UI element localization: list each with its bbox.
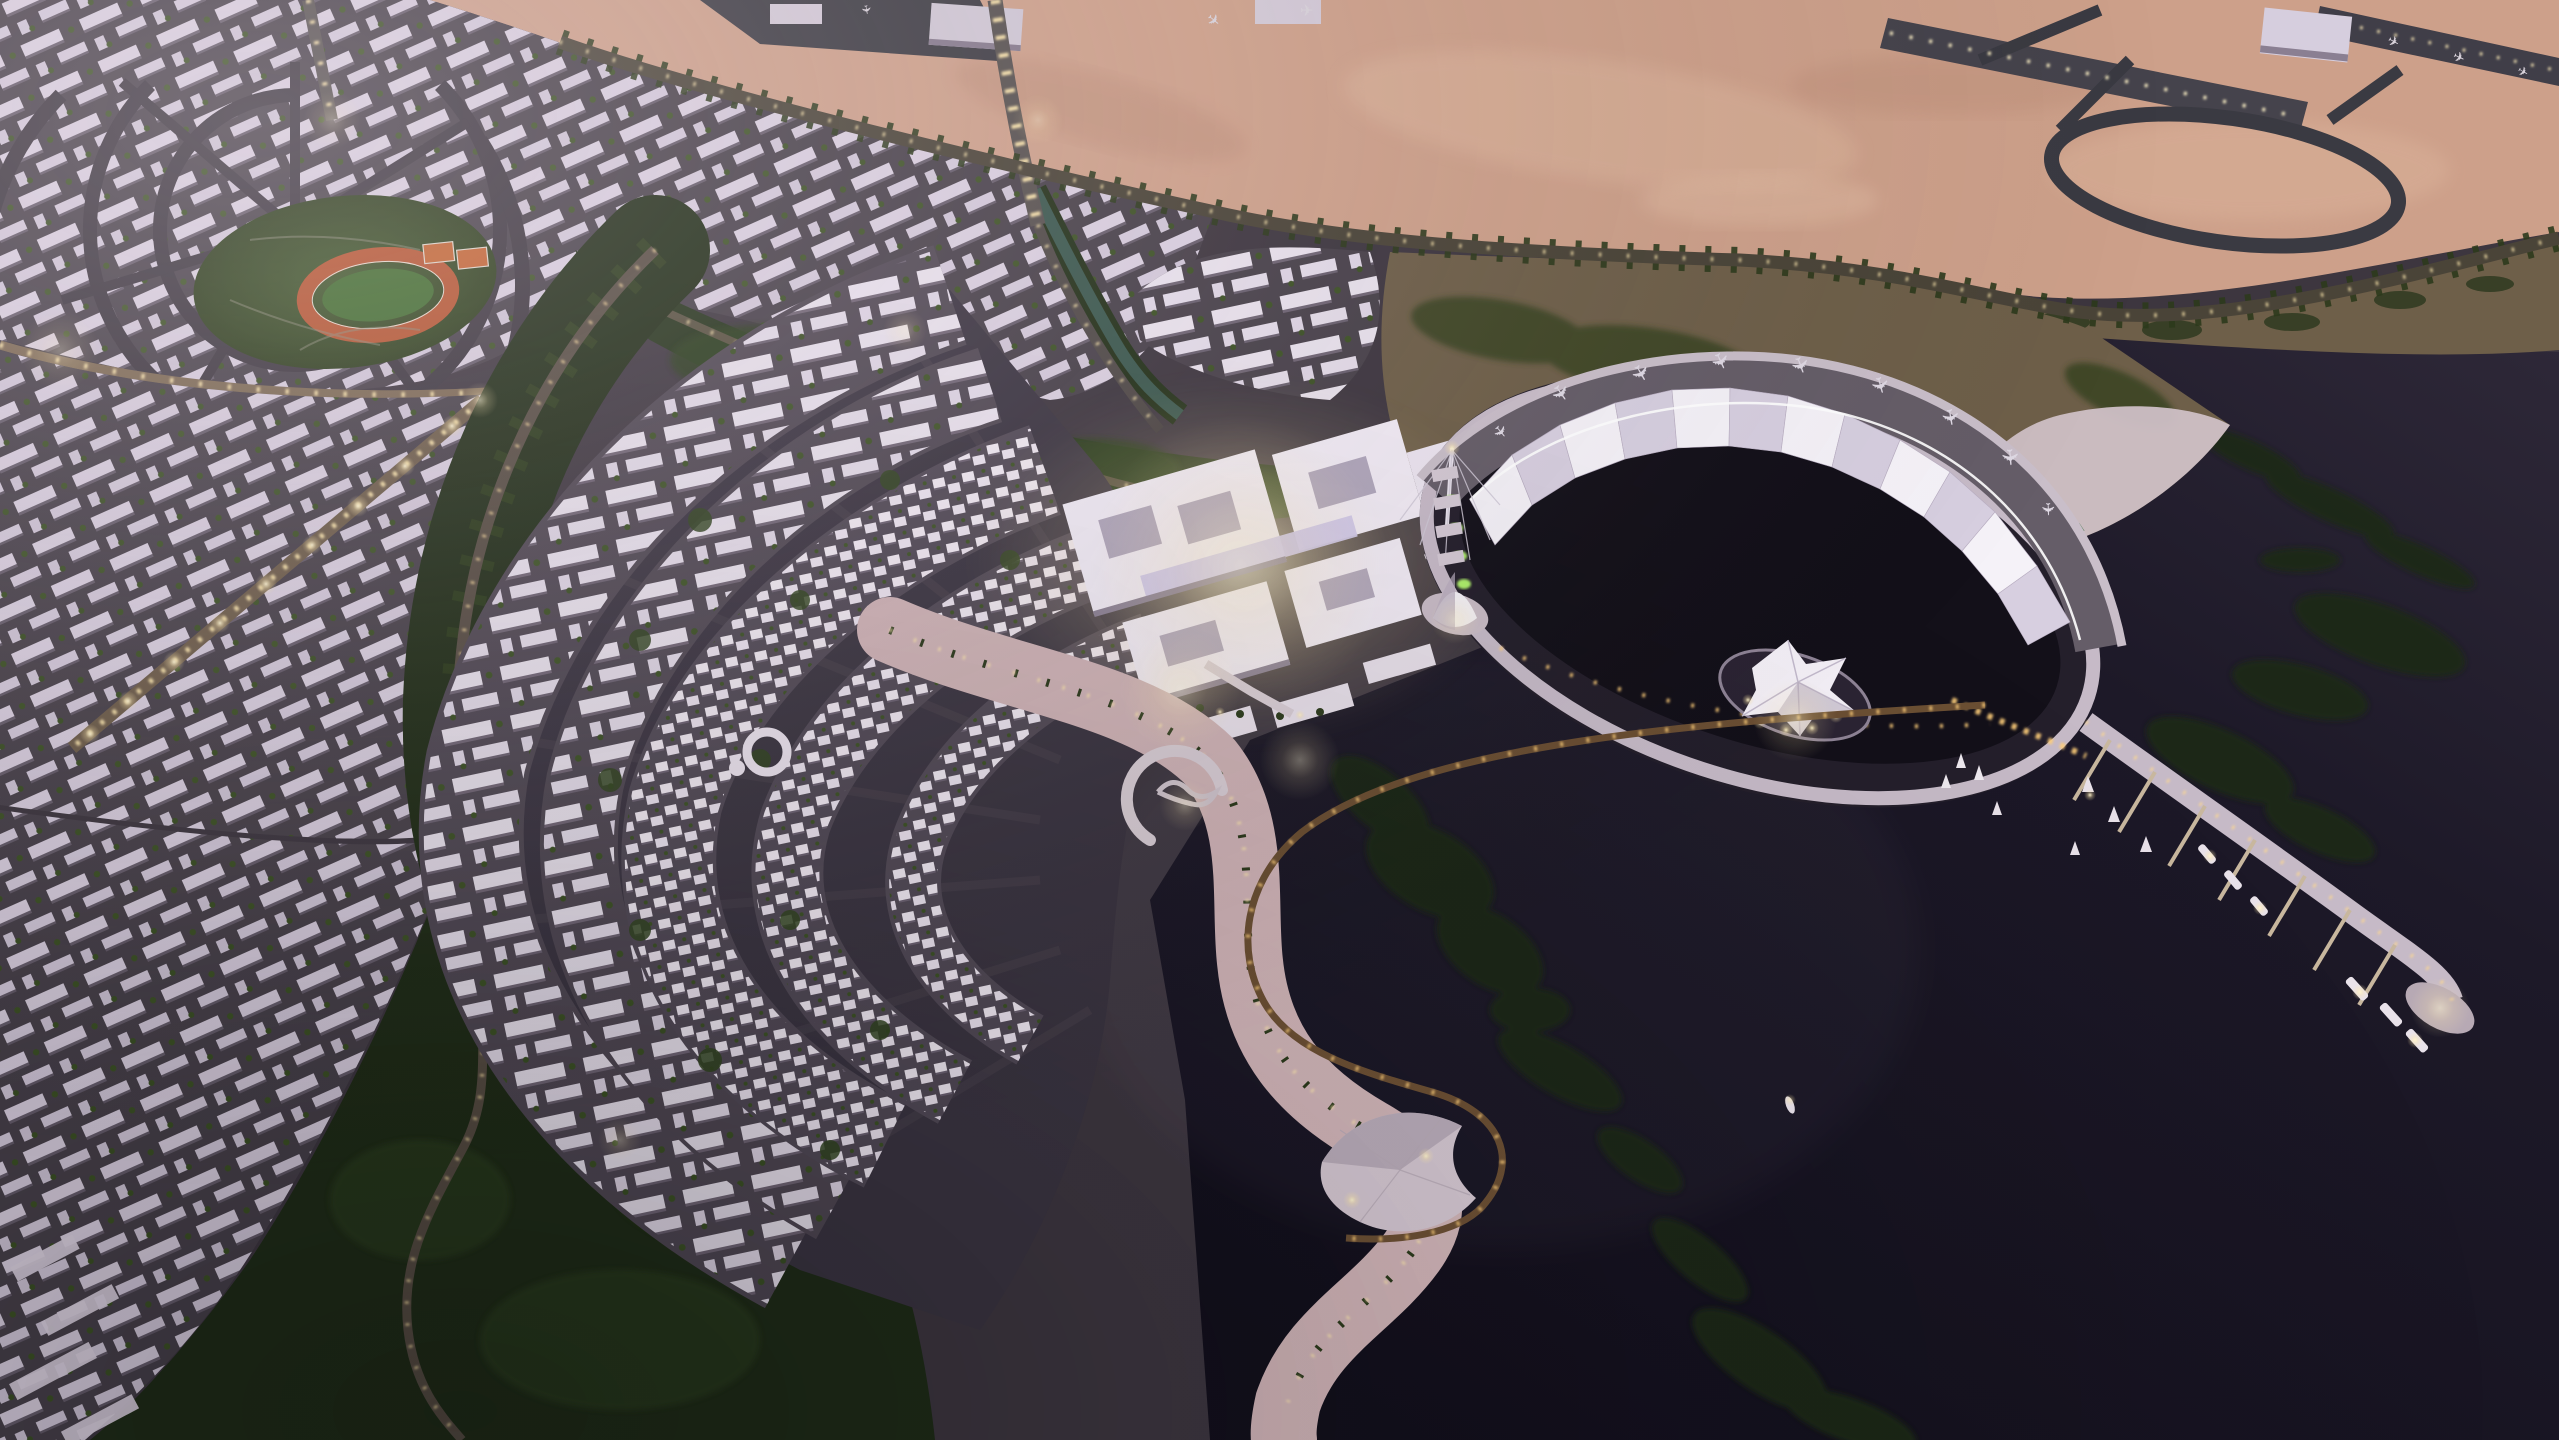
vignette xyxy=(0,0,2559,1440)
masterplan-rendering: ✈ ✈ ✈ ✈ ✈ ✈ xyxy=(0,0,2559,1440)
scene-canvas: ✈ ✈ ✈ ✈ ✈ ✈ xyxy=(0,0,2559,1440)
